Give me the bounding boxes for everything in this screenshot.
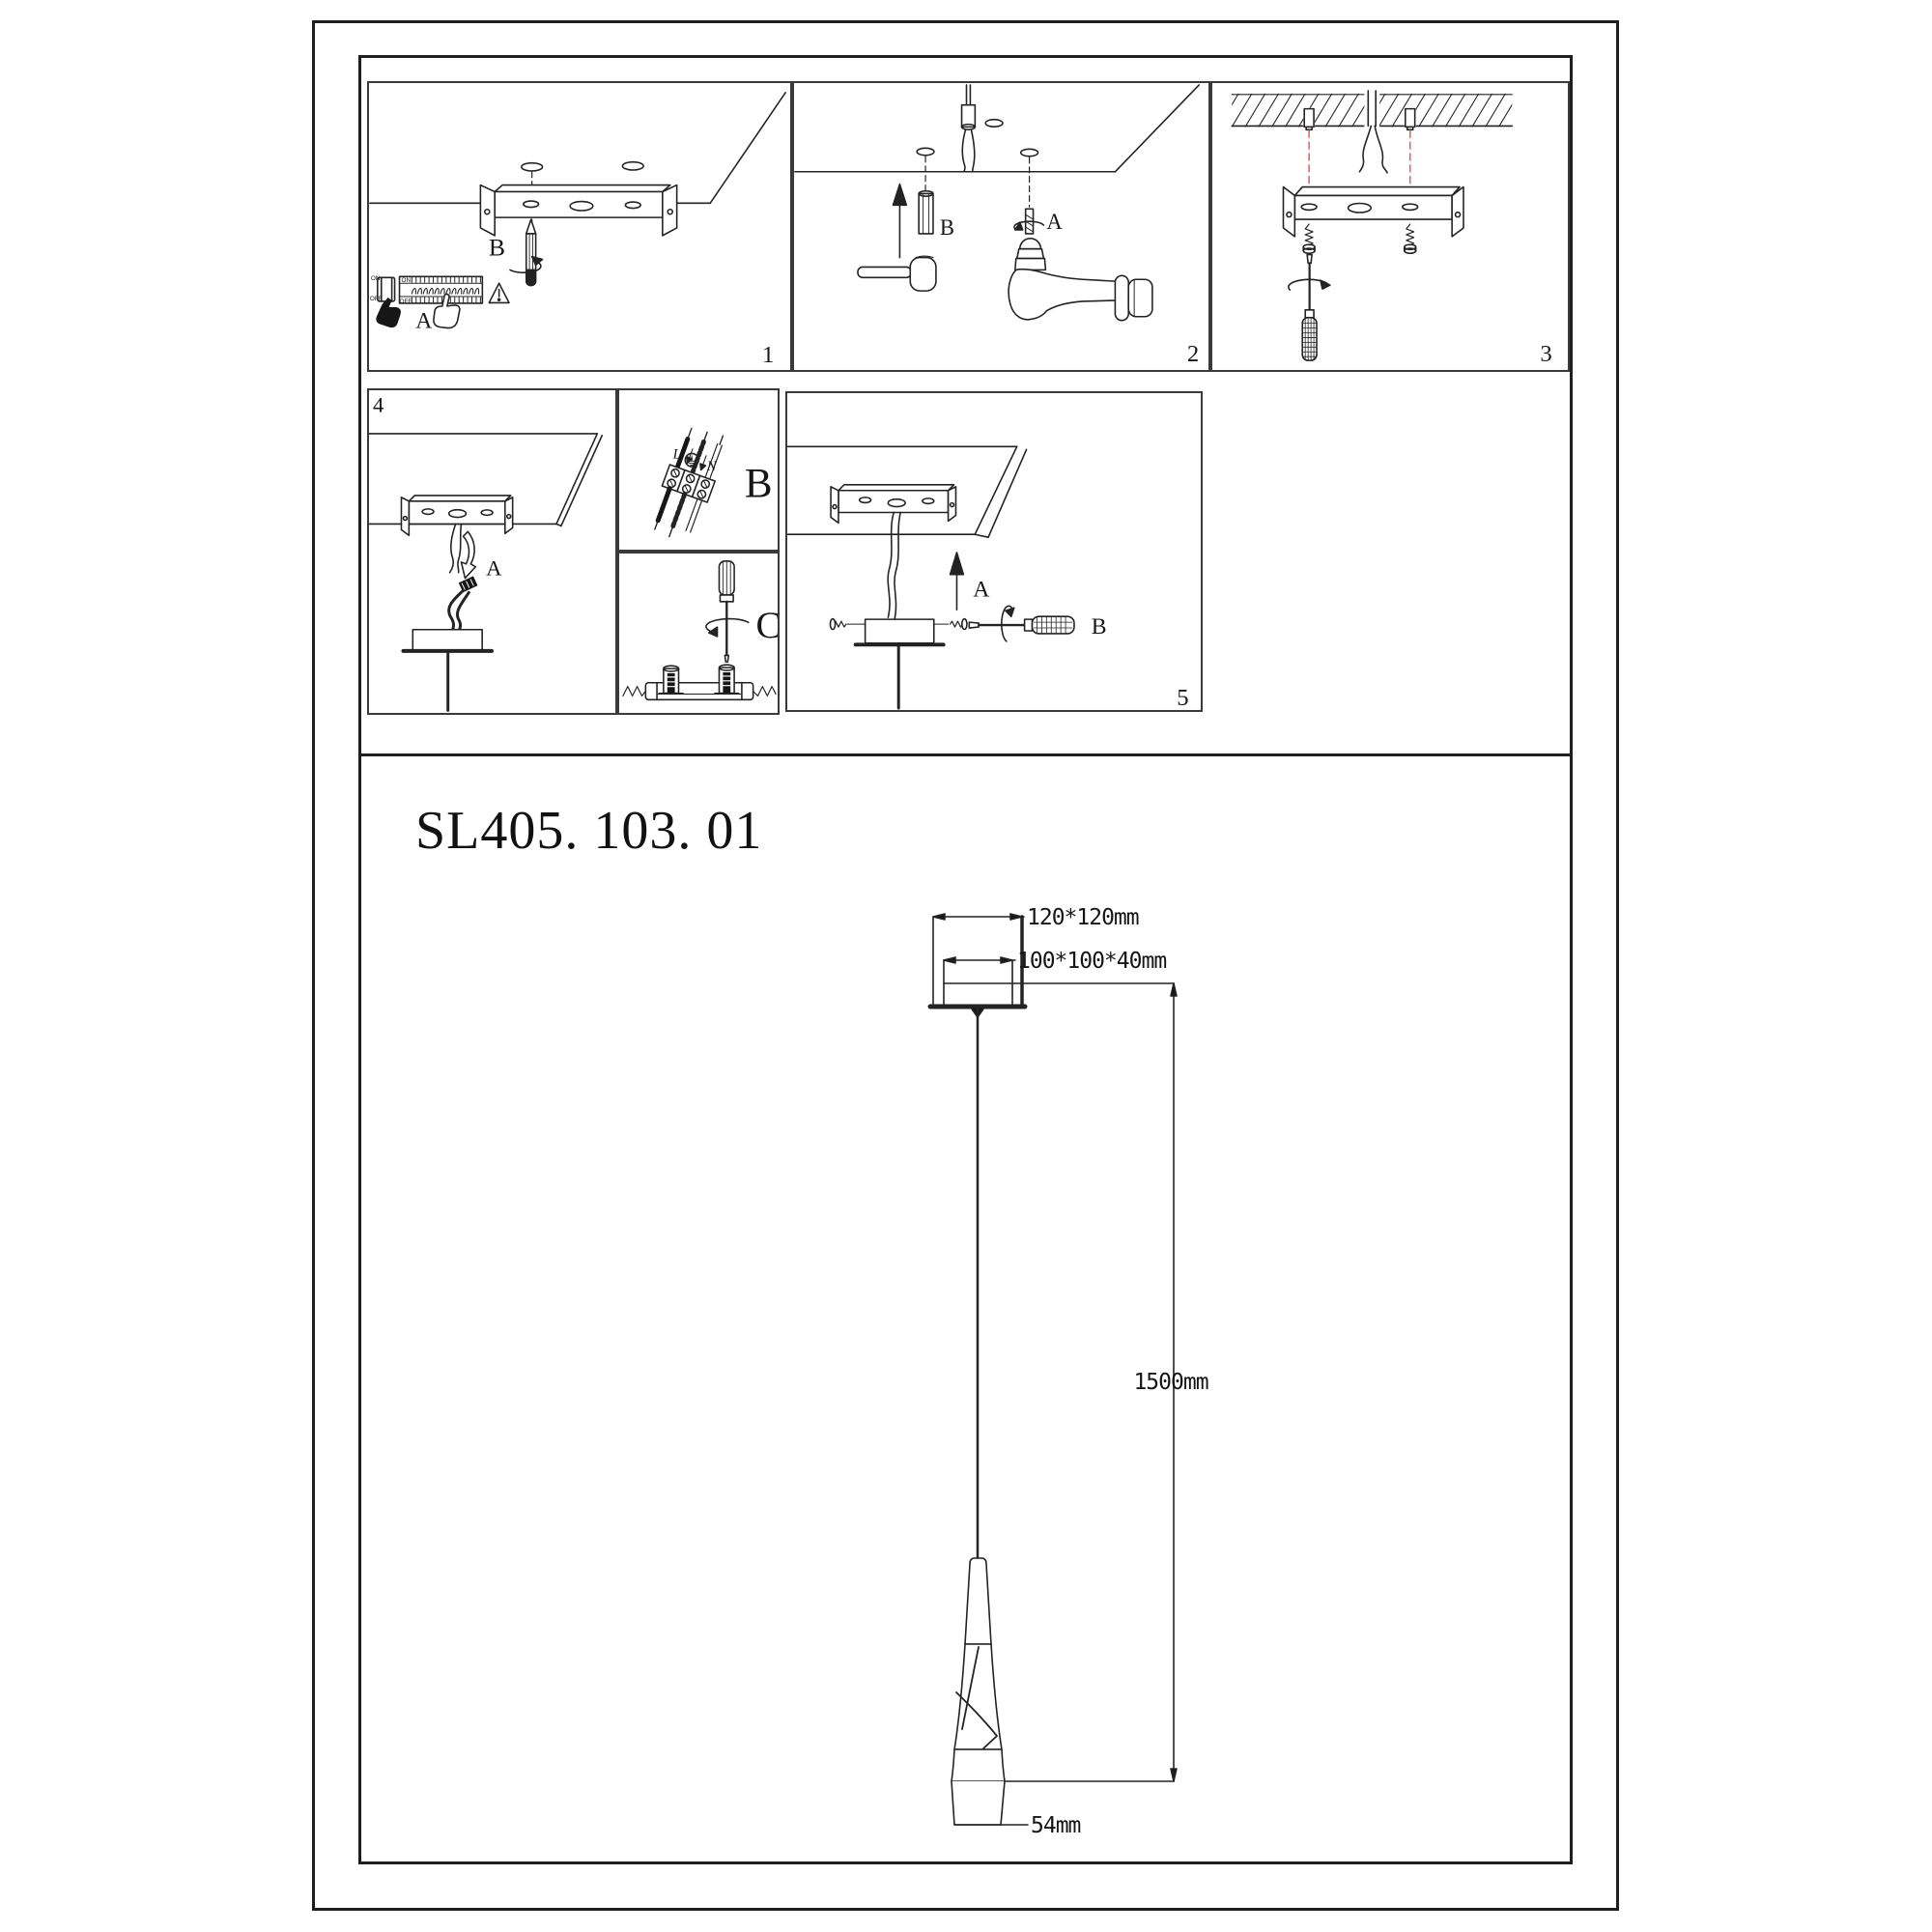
mounting-bracket [401, 496, 512, 535]
live-label: L [672, 446, 681, 462]
dimension-length: 1500mm [1133, 1370, 1207, 1395]
ceiling-hole-mark [1021, 149, 1038, 156]
breaker-off-label: OFF [400, 298, 412, 305]
terminal-connector [459, 576, 478, 592]
panel-wiring-detail: L N B [617, 388, 780, 552]
label-a: A [1046, 210, 1063, 234]
label-a: A [973, 577, 989, 602]
ceiling-corner [795, 85, 1199, 172]
breaker-on-label: ON [401, 277, 411, 284]
breaker-strip-icon [400, 276, 483, 303]
switch-off-label: OFF [370, 296, 383, 302]
arrow-up-icon [951, 553, 964, 610]
label-b: B [489, 234, 505, 262]
switch-on-label: ON [371, 275, 381, 282]
ceiling-hole-mark [985, 120, 1003, 127]
terminal-block [646, 422, 730, 545]
warning-triangle-icon [489, 283, 509, 302]
panel-step4: 4 [367, 388, 617, 715]
detail-label: B [745, 461, 773, 506]
panel-step3: 3 [1210, 81, 1570, 372]
step-number: 3 [1540, 341, 1551, 367]
screwdriver-icon [1302, 255, 1317, 361]
ceiling-drill-marks [522, 162, 643, 171]
panel-tighten-detail: C [617, 552, 780, 715]
screw-icon [1303, 224, 1315, 253]
screw-icon [1405, 224, 1416, 253]
rotate-arrow-icon [1002, 606, 1014, 641]
dimension-shade: 54mm [1031, 1813, 1081, 1838]
hammer-icon [858, 256, 936, 291]
neutral-label: N [706, 459, 718, 474]
drill-icon [1009, 239, 1152, 321]
arrow-up-icon [894, 185, 907, 258]
step-number: 5 [1177, 685, 1188, 711]
panel-step1: B ON OFF ON OFF A [367, 81, 792, 372]
mains-cable [1359, 91, 1387, 173]
mounting-bracket [480, 185, 676, 236]
step-number: 4 [373, 392, 384, 416]
screwdriver-icon [969, 616, 1074, 634]
canopy [856, 619, 944, 708]
label-a: A [486, 556, 502, 581]
curved-arrow-icon [462, 531, 476, 578]
wall-anchor-icon [919, 191, 933, 234]
pendant-dimension-drawing: 120*120mm 100*100*40mm 1500mm [361, 761, 1570, 1862]
mains-cable [962, 85, 976, 172]
section-divider [361, 753, 1570, 756]
screw-icon [935, 619, 967, 630]
panel-step2: B A [792, 81, 1210, 372]
ceiling-hole-mark [917, 148, 934, 155]
canopy [403, 630, 492, 711]
screw-icon [830, 619, 864, 630]
panel-step5: A [785, 391, 1203, 712]
pencil-icon [526, 219, 536, 286]
dimension-box: 100*100*40mm [1017, 949, 1166, 974]
ceiling-wires [450, 524, 462, 572]
pendant-shade [952, 1558, 1005, 1825]
label-b: B [1092, 614, 1107, 639]
mounting-bracket [1283, 187, 1463, 237]
label-a: A [415, 309, 432, 334]
terminal-rail [645, 683, 753, 700]
ceiling-wires [888, 512, 900, 618]
dimension-plate: 120*120mm [1027, 905, 1139, 930]
step-number: 1 [762, 342, 774, 368]
label-b: B [940, 215, 954, 240]
step-number: 2 [1187, 341, 1199, 367]
embedded-anchor [1303, 108, 1315, 130]
detail-label: C [756, 605, 780, 646]
screwdriver-icon [719, 561, 734, 662]
embedded-anchor [1405, 108, 1416, 130]
instruction-manual-page: B ON OFF ON OFF A [0, 0, 1932, 1932]
lamp-wires [449, 590, 469, 629]
